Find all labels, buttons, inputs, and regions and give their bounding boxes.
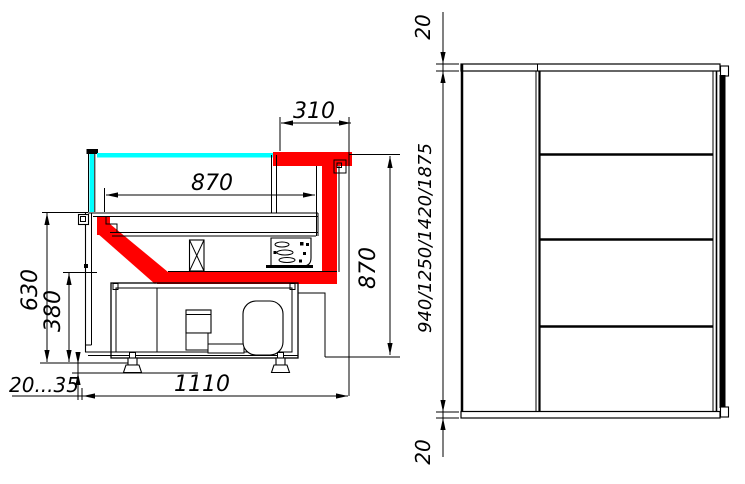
cross-brace — [190, 240, 205, 271]
technical-drawing: 310 870 870 630 380 20...35 1110 — [0, 0, 745, 484]
front-glass-pane — [90, 153, 95, 212]
red-bottom-bar — [157, 272, 337, 284]
canopy-end-cap — [721, 66, 729, 76]
compressor — [243, 301, 283, 355]
dim-20-top-label: 20 — [411, 14, 435, 39]
control-box-lower — [186, 333, 208, 350]
panel-screw — [84, 264, 88, 268]
glass-top-cap — [87, 149, 99, 154]
drain-tray — [208, 344, 244, 353]
front-glass-edge-bar — [720, 75, 726, 408]
elevation-dimensions — [436, 12, 459, 457]
dim-630-label: 630 — [18, 269, 43, 311]
machine-compartment — [111, 283, 325, 358]
dim-310-label: 310 — [293, 99, 335, 124]
base-end-cap — [721, 407, 729, 417]
red-top-bar — [273, 152, 352, 166]
dim-870-height-label: 870 — [356, 247, 381, 289]
glass-front — [87, 149, 274, 212]
dim-870-depth-label: 870 — [191, 171, 233, 196]
dim-heights-label: 940/1250/1420/1875 — [415, 143, 436, 333]
display-deck — [88, 213, 318, 236]
rear-cladding-step — [298, 293, 325, 357]
dim-20-bottom-label: 20 — [411, 439, 435, 464]
red-back-column — [322, 164, 337, 276]
drawing-canvas: 310 870 870 630 380 20...35 1110 — [0, 0, 745, 484]
dim-foot-adjust-label: 20...35 — [9, 373, 79, 397]
dim-1110-label: 1110 — [174, 372, 230, 397]
elevation-view: 20 940/1250/1420/1875 20 — [411, 12, 729, 465]
base-slab — [461, 412, 720, 419]
dim-380-label: 380 — [41, 290, 66, 332]
glass-top-shelf — [97, 153, 273, 158]
canopy-slab — [461, 64, 720, 71]
control-box — [186, 310, 211, 333]
section-view: 310 870 870 630 380 20...35 1110 — [9, 99, 400, 400]
evaporator-unit — [266, 238, 313, 267]
